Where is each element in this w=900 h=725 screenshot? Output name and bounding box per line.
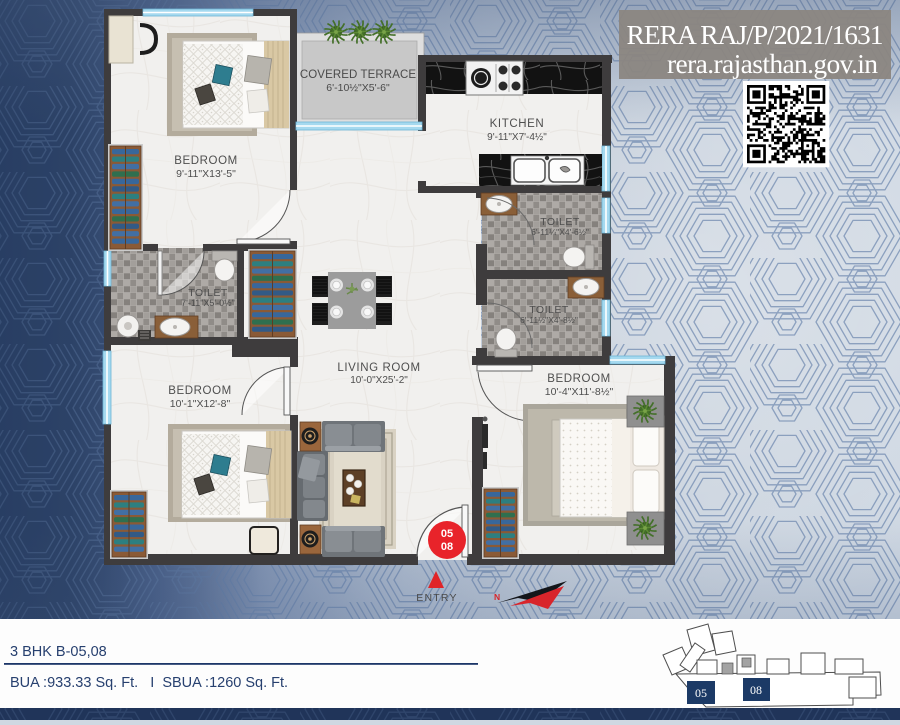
svg-text:BEDROOM: BEDROOM [547,373,611,385]
svg-text:RERA RAJ/P/2021/1631: RERA RAJ/P/2021/1631 [627,19,884,50]
svg-text:10'-4"X11'-8½": 10'-4"X11'-8½" [545,386,614,398]
svg-text:05: 05 [695,686,707,700]
svg-text:08: 08 [750,683,762,697]
svg-text:7'-11"X5'-0½": 7'-11"X5'-0½" [181,298,235,308]
svg-text:BUA :933.33 Sq. Ft. I SBUA: BUA :933.33 Sq. Ft. I SBUA :1260 Sq. Ft. [10,675,288,691]
svg-text:COVERED TERRACE: COVERED TERRACE [300,69,417,81]
svg-text:9'-11"X13'-5": 9'-11"X13'-5" [176,168,236,180]
svg-text:BEDROOM: BEDROOM [168,385,232,397]
svg-text:08: 08 [441,541,453,553]
svg-text:6'-11¼"X4'-6½": 6'-11¼"X4'-6½" [531,227,589,237]
svg-text:10'-0"X25'-2": 10'-0"X25'-2" [350,375,408,386]
svg-text:ENTRY: ENTRY [416,592,457,604]
svg-text:9'-11"X7'-4½": 9'-11"X7'-4½" [487,132,547,143]
svg-text:05: 05 [441,528,453,540]
svg-text:N: N [494,592,500,602]
svg-text:6'-11½"X4'-8½": 6'-11½"X4'-8½" [520,315,578,325]
svg-text:10'-1"X12'-8": 10'-1"X12'-8" [170,398,231,410]
svg-text:BEDROOM: BEDROOM [174,155,238,167]
svg-text:LIVING ROOM: LIVING ROOM [337,362,420,374]
svg-text:KITCHEN: KITCHEN [490,118,545,130]
svg-text:6'-10½"X5'-6": 6'-10½"X5'-6" [326,82,390,94]
svg-text:rera.rajasthan.gov.in: rera.rajasthan.gov.in [667,48,878,79]
svg-text:3 BHK B-05,08: 3 BHK B-05,08 [10,644,107,660]
